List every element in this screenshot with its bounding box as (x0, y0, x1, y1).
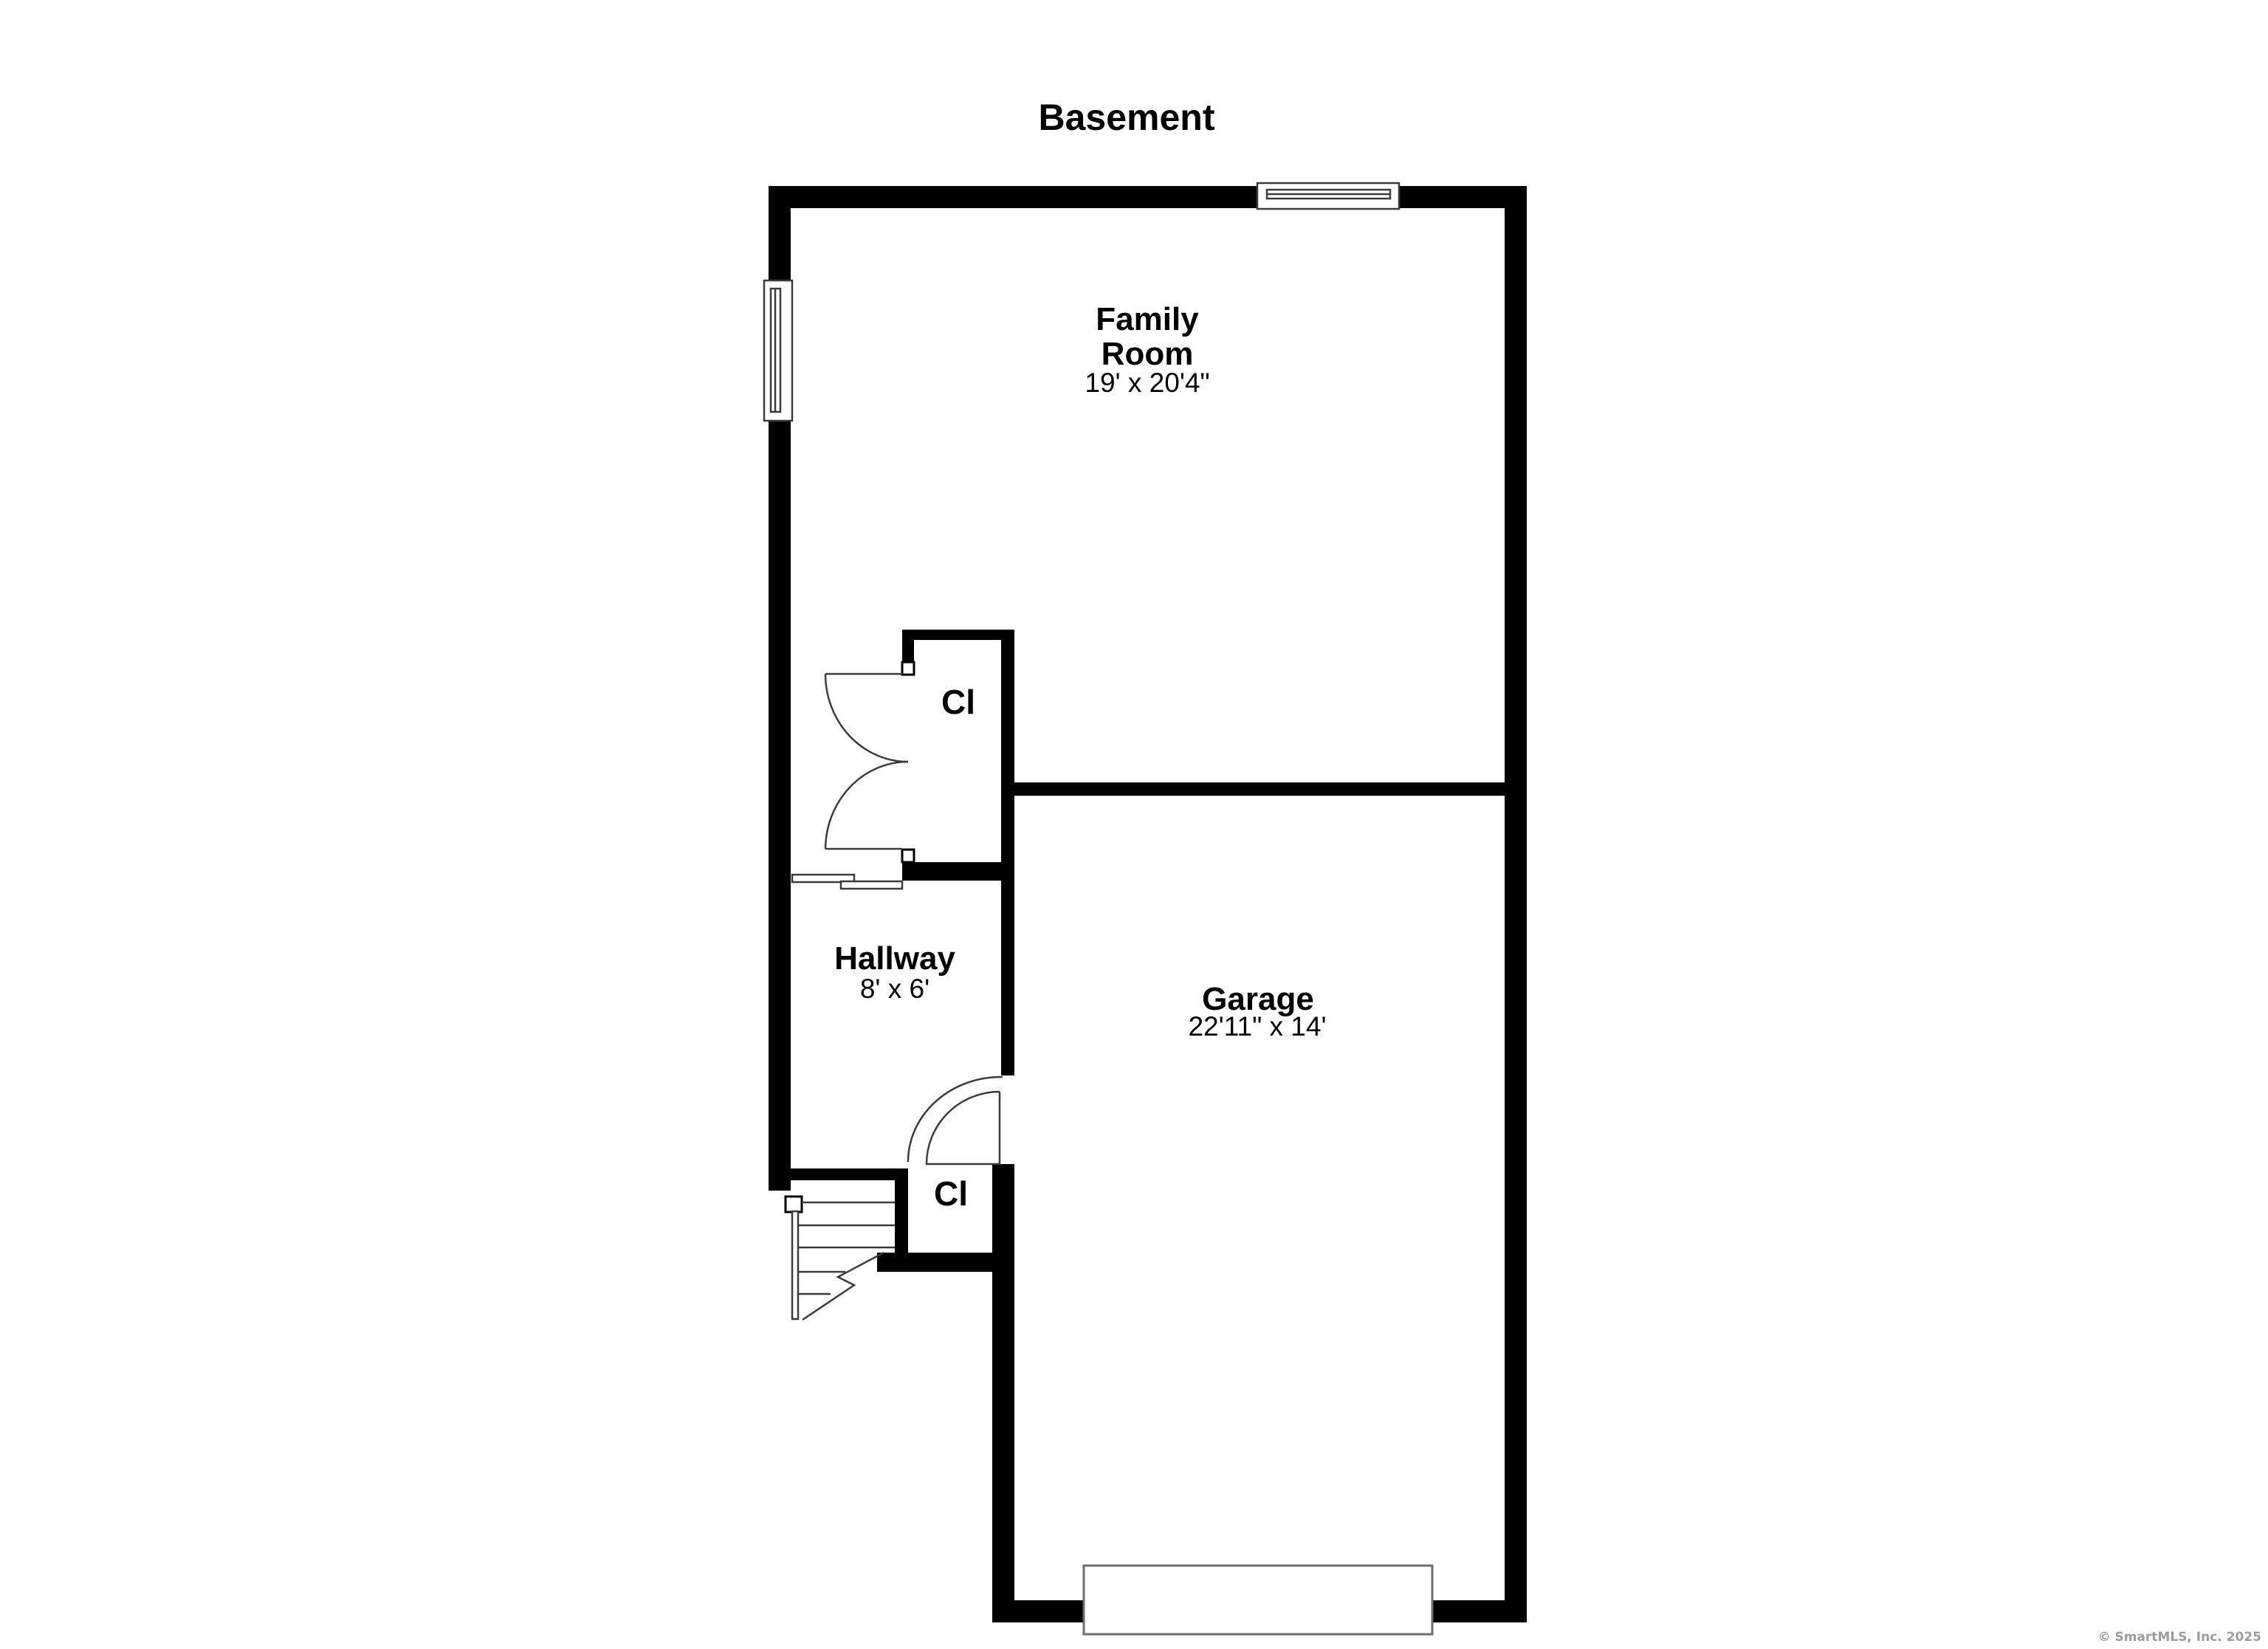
garage-left-wall (992, 1164, 1014, 1622)
stair-stringer (792, 1211, 798, 1319)
left-wall-window (764, 280, 792, 421)
bottom-wall-right-segment (1432, 1600, 1527, 1622)
floor-plan-canvas: Basement Family Room 19' x 20'4" Cl Hall… (0, 0, 2268, 1649)
room-dimensions: 22'11" x 14' (1188, 1011, 1326, 1042)
room-name-line1: Family (1096, 301, 1199, 337)
lower-closet-label: Cl (934, 1174, 968, 1213)
left-wall-upper-segment (769, 186, 791, 280)
basement-floor-plan: Basement Family Room 19' x 20'4" Cl Hall… (0, 0, 2268, 1649)
watermark-text: © SmartMLS, Inc. 2025 (2098, 1630, 2261, 1645)
room-dimensions: 8' x 6' (860, 974, 929, 1004)
door-jamb-bottom (902, 850, 914, 862)
family-room-garage-divider-wall (1001, 782, 1505, 796)
stair-newel-post (786, 1197, 802, 1212)
lower-closet-bottom-wall (877, 1253, 1014, 1272)
garage-label: Garage 22'11" x 14' (1188, 981, 1326, 1042)
top-wall-left-segment (769, 186, 1257, 208)
hallway-bottom-wall (786, 1168, 908, 1180)
upper-closet-bottom-wall (902, 862, 1014, 881)
stairwell-right-wall (895, 1180, 908, 1255)
closet-garage-vertical-wall (1001, 630, 1014, 1075)
top-wall-window (1257, 183, 1399, 209)
room-name: Hallway (834, 940, 955, 977)
left-wall-lower-segment (769, 421, 791, 1191)
family-room-label: Family Room 19' x 20'4" (1085, 301, 1209, 398)
room-dimensions: 19' x 20'4" (1085, 368, 1209, 398)
upper-closet-top-wall (902, 630, 1014, 640)
room-name-line2: Room (1102, 336, 1194, 372)
upper-closet-left-stub (902, 630, 914, 663)
upper-closet-label: Cl (941, 683, 975, 721)
right-wall (1505, 186, 1527, 1622)
slider-panel-right (841, 881, 902, 889)
page-background (0, 0, 2268, 1649)
plan-title: Basement (1039, 97, 1215, 138)
garage-door (1084, 1566, 1432, 1634)
door-jamb-top (902, 662, 914, 675)
